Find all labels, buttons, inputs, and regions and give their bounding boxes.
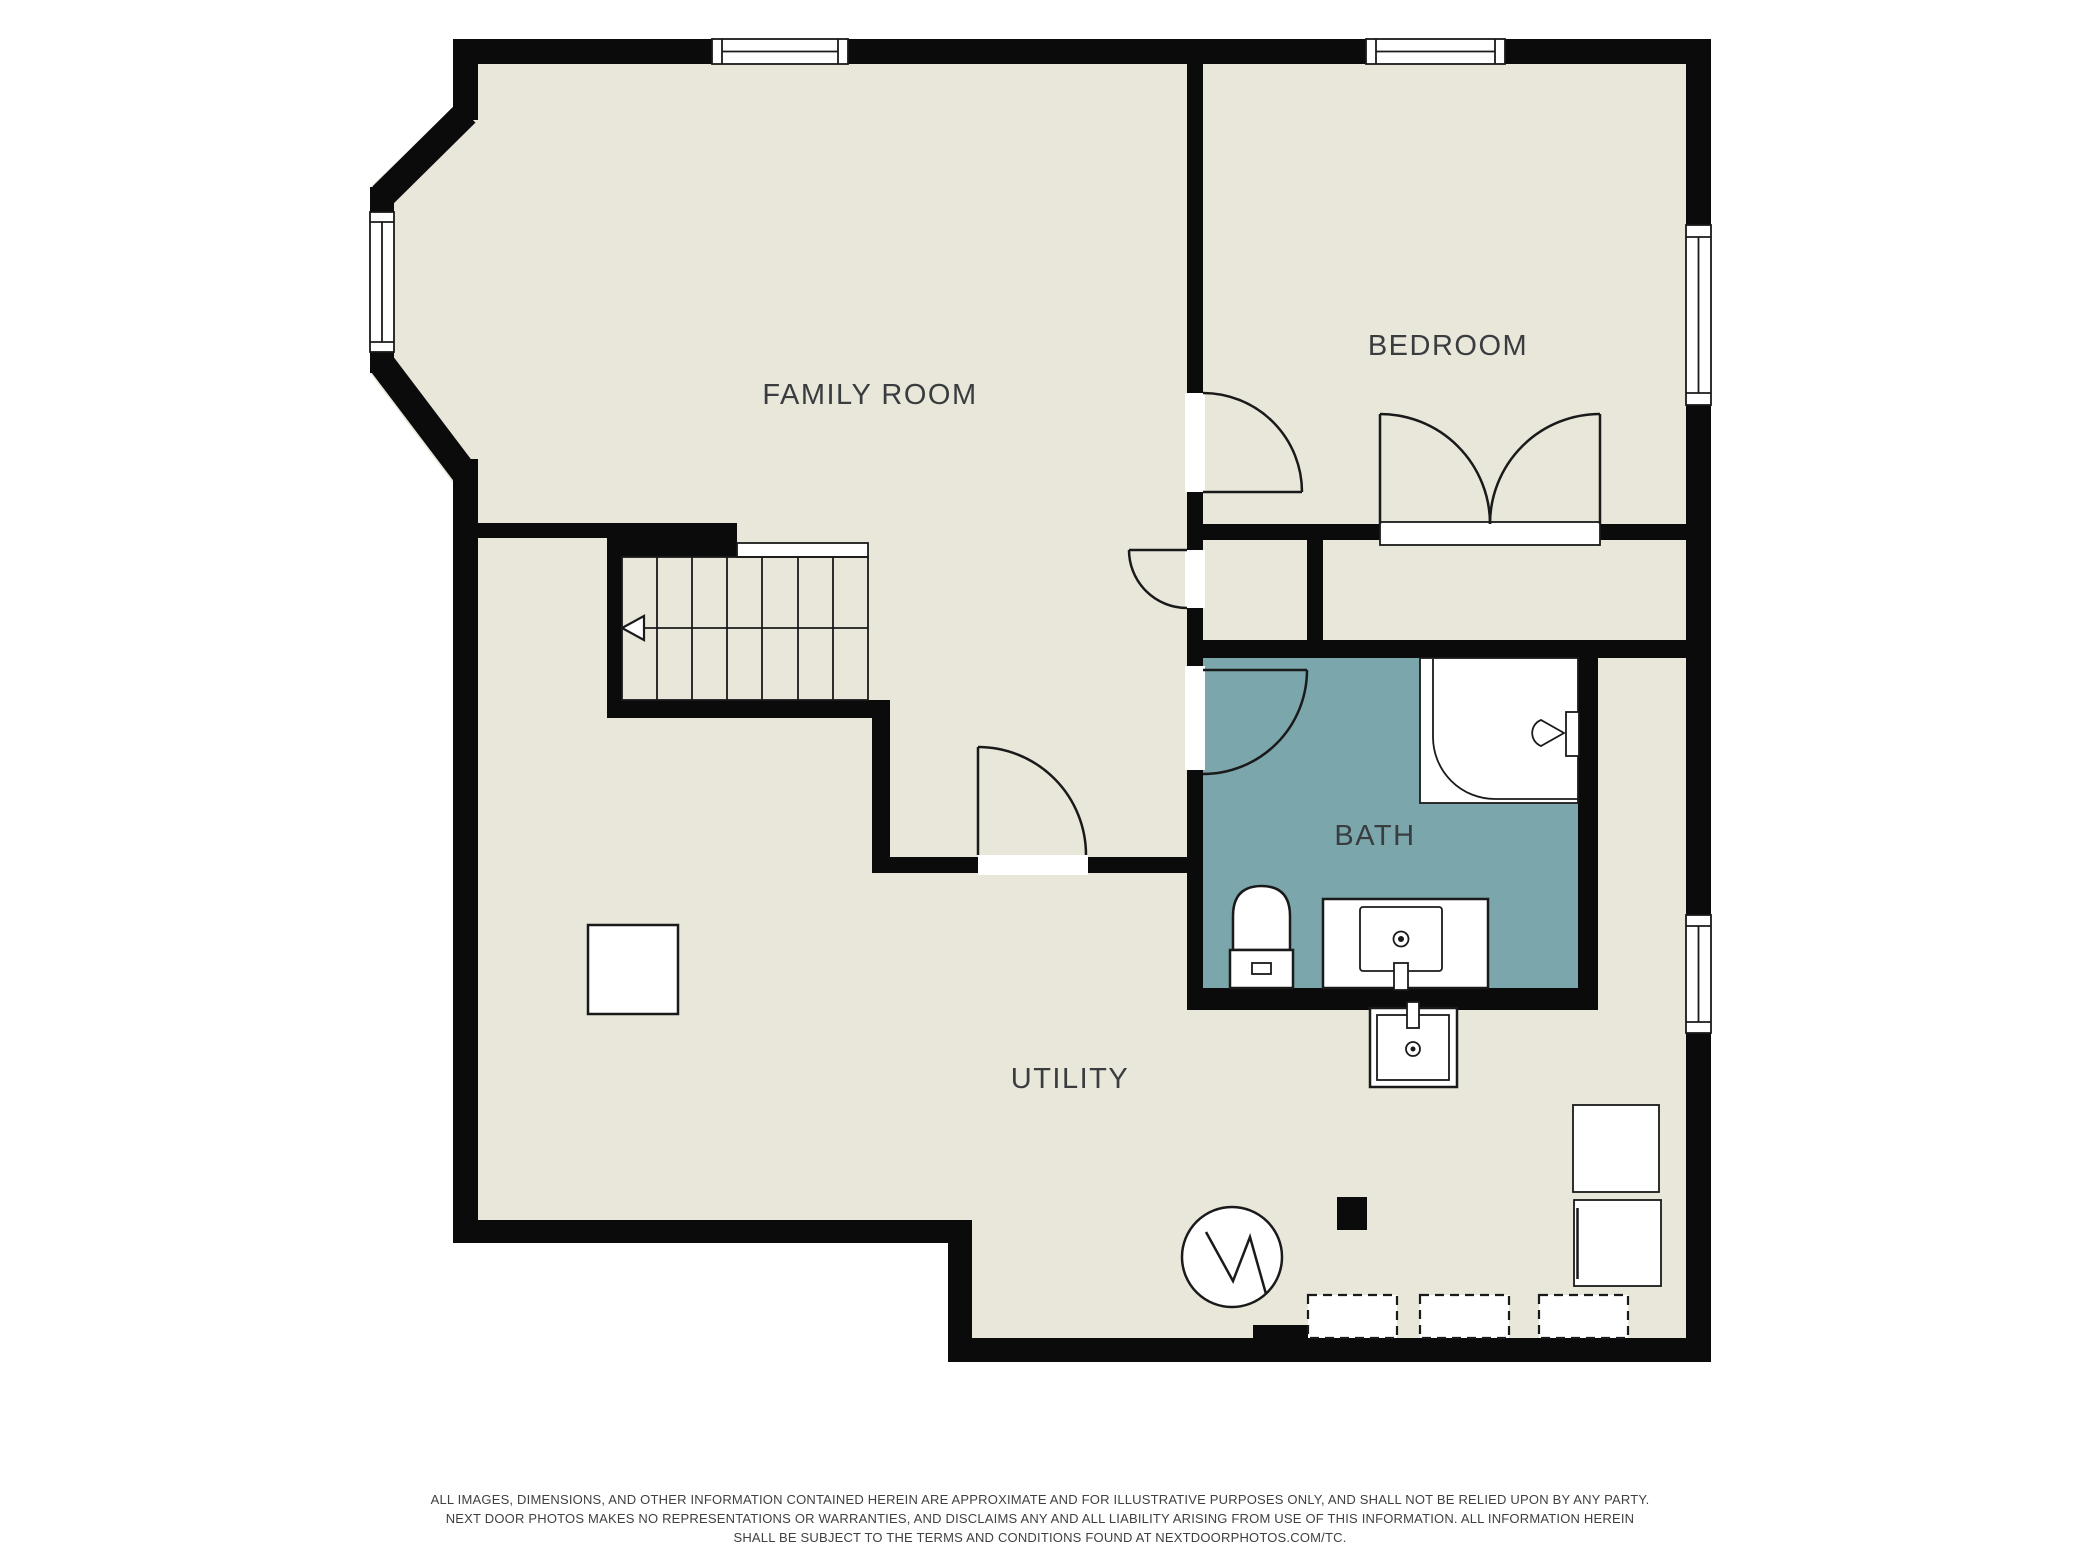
dashed-box-2 bbox=[1420, 1295, 1509, 1338]
toilet-icon bbox=[1230, 886, 1293, 988]
window-family-top bbox=[712, 39, 848, 64]
window-bay-left bbox=[370, 212, 394, 352]
floor-plan-page: FAMILY ROOM BEDROOM BATH UTILITY ALL IMA… bbox=[0, 0, 2080, 1560]
wall-bottom-right bbox=[948, 1338, 1711, 1362]
wall-bath-top bbox=[1187, 640, 1686, 658]
wall-closet-divider bbox=[1307, 540, 1323, 640]
utility-sink-icon bbox=[1370, 1002, 1457, 1087]
wall-bath-left bbox=[1187, 770, 1203, 988]
disclaimer-line-2: NEXT DOOR PHOTOS MAKES NO REPRESENTATION… bbox=[446, 1511, 1635, 1526]
wall-left-lower bbox=[453, 459, 478, 1243]
dashed-box-1 bbox=[1308, 1295, 1397, 1338]
wall-bottom-left bbox=[453, 1220, 972, 1243]
wall-stair-bottom bbox=[607, 700, 890, 718]
floor-plan: FAMILY ROOM BEDROOM BATH UTILITY ALL IMA… bbox=[0, 0, 2080, 1560]
wall-bedroom-bottom-right bbox=[1600, 524, 1686, 540]
window-bedroom-right bbox=[1686, 225, 1711, 405]
wall-stair-band bbox=[607, 523, 737, 557]
label-bath: BATH bbox=[1334, 820, 1415, 852]
disclaimer-line-1: ALL IMAGES, DIMENSIONS, AND OTHER INFORM… bbox=[431, 1492, 1650, 1507]
wall-stair-a bbox=[476, 523, 622, 538]
window-utility-right bbox=[1686, 915, 1711, 1033]
support-post-icon bbox=[588, 925, 678, 1014]
disclaimer: ALL IMAGES, DIMENSIONS, AND OTHER INFORM… bbox=[431, 1492, 1650, 1545]
dryer-icon bbox=[1574, 1200, 1661, 1286]
wall-utility-right bbox=[1088, 857, 1187, 873]
label-utility: UTILITY bbox=[1011, 1063, 1129, 1095]
wall-bath-bottom bbox=[1187, 988, 1598, 1010]
water-heater-icon bbox=[1182, 1207, 1282, 1307]
wall-bedroom-bottom-left bbox=[1203, 524, 1380, 540]
wall-utility-left bbox=[872, 857, 978, 873]
stair-landing bbox=[737, 543, 868, 557]
wall-bath-right bbox=[1578, 658, 1598, 1010]
shower-icon bbox=[1420, 658, 1579, 803]
wall-stair-connector bbox=[872, 700, 890, 857]
wall-top bbox=[453, 39, 1711, 64]
disclaimer-line-3: SHALL BE SUBJECT TO THE TERMS AND CONDIT… bbox=[733, 1530, 1346, 1545]
washer-icon bbox=[1573, 1105, 1659, 1192]
label-family-room: FAMILY ROOM bbox=[762, 379, 977, 411]
wall-divider-1 bbox=[1187, 64, 1203, 393]
flue-icon bbox=[1337, 1197, 1367, 1230]
window-bedroom-top bbox=[1366, 39, 1505, 64]
vanity-sink-icon bbox=[1323, 899, 1488, 990]
dashed-box-3 bbox=[1539, 1295, 1628, 1338]
wall-divider-2 bbox=[1187, 492, 1203, 550]
showerhead-mount-icon bbox=[1566, 712, 1579, 756]
label-bedroom: BEDROOM bbox=[1368, 330, 1528, 362]
